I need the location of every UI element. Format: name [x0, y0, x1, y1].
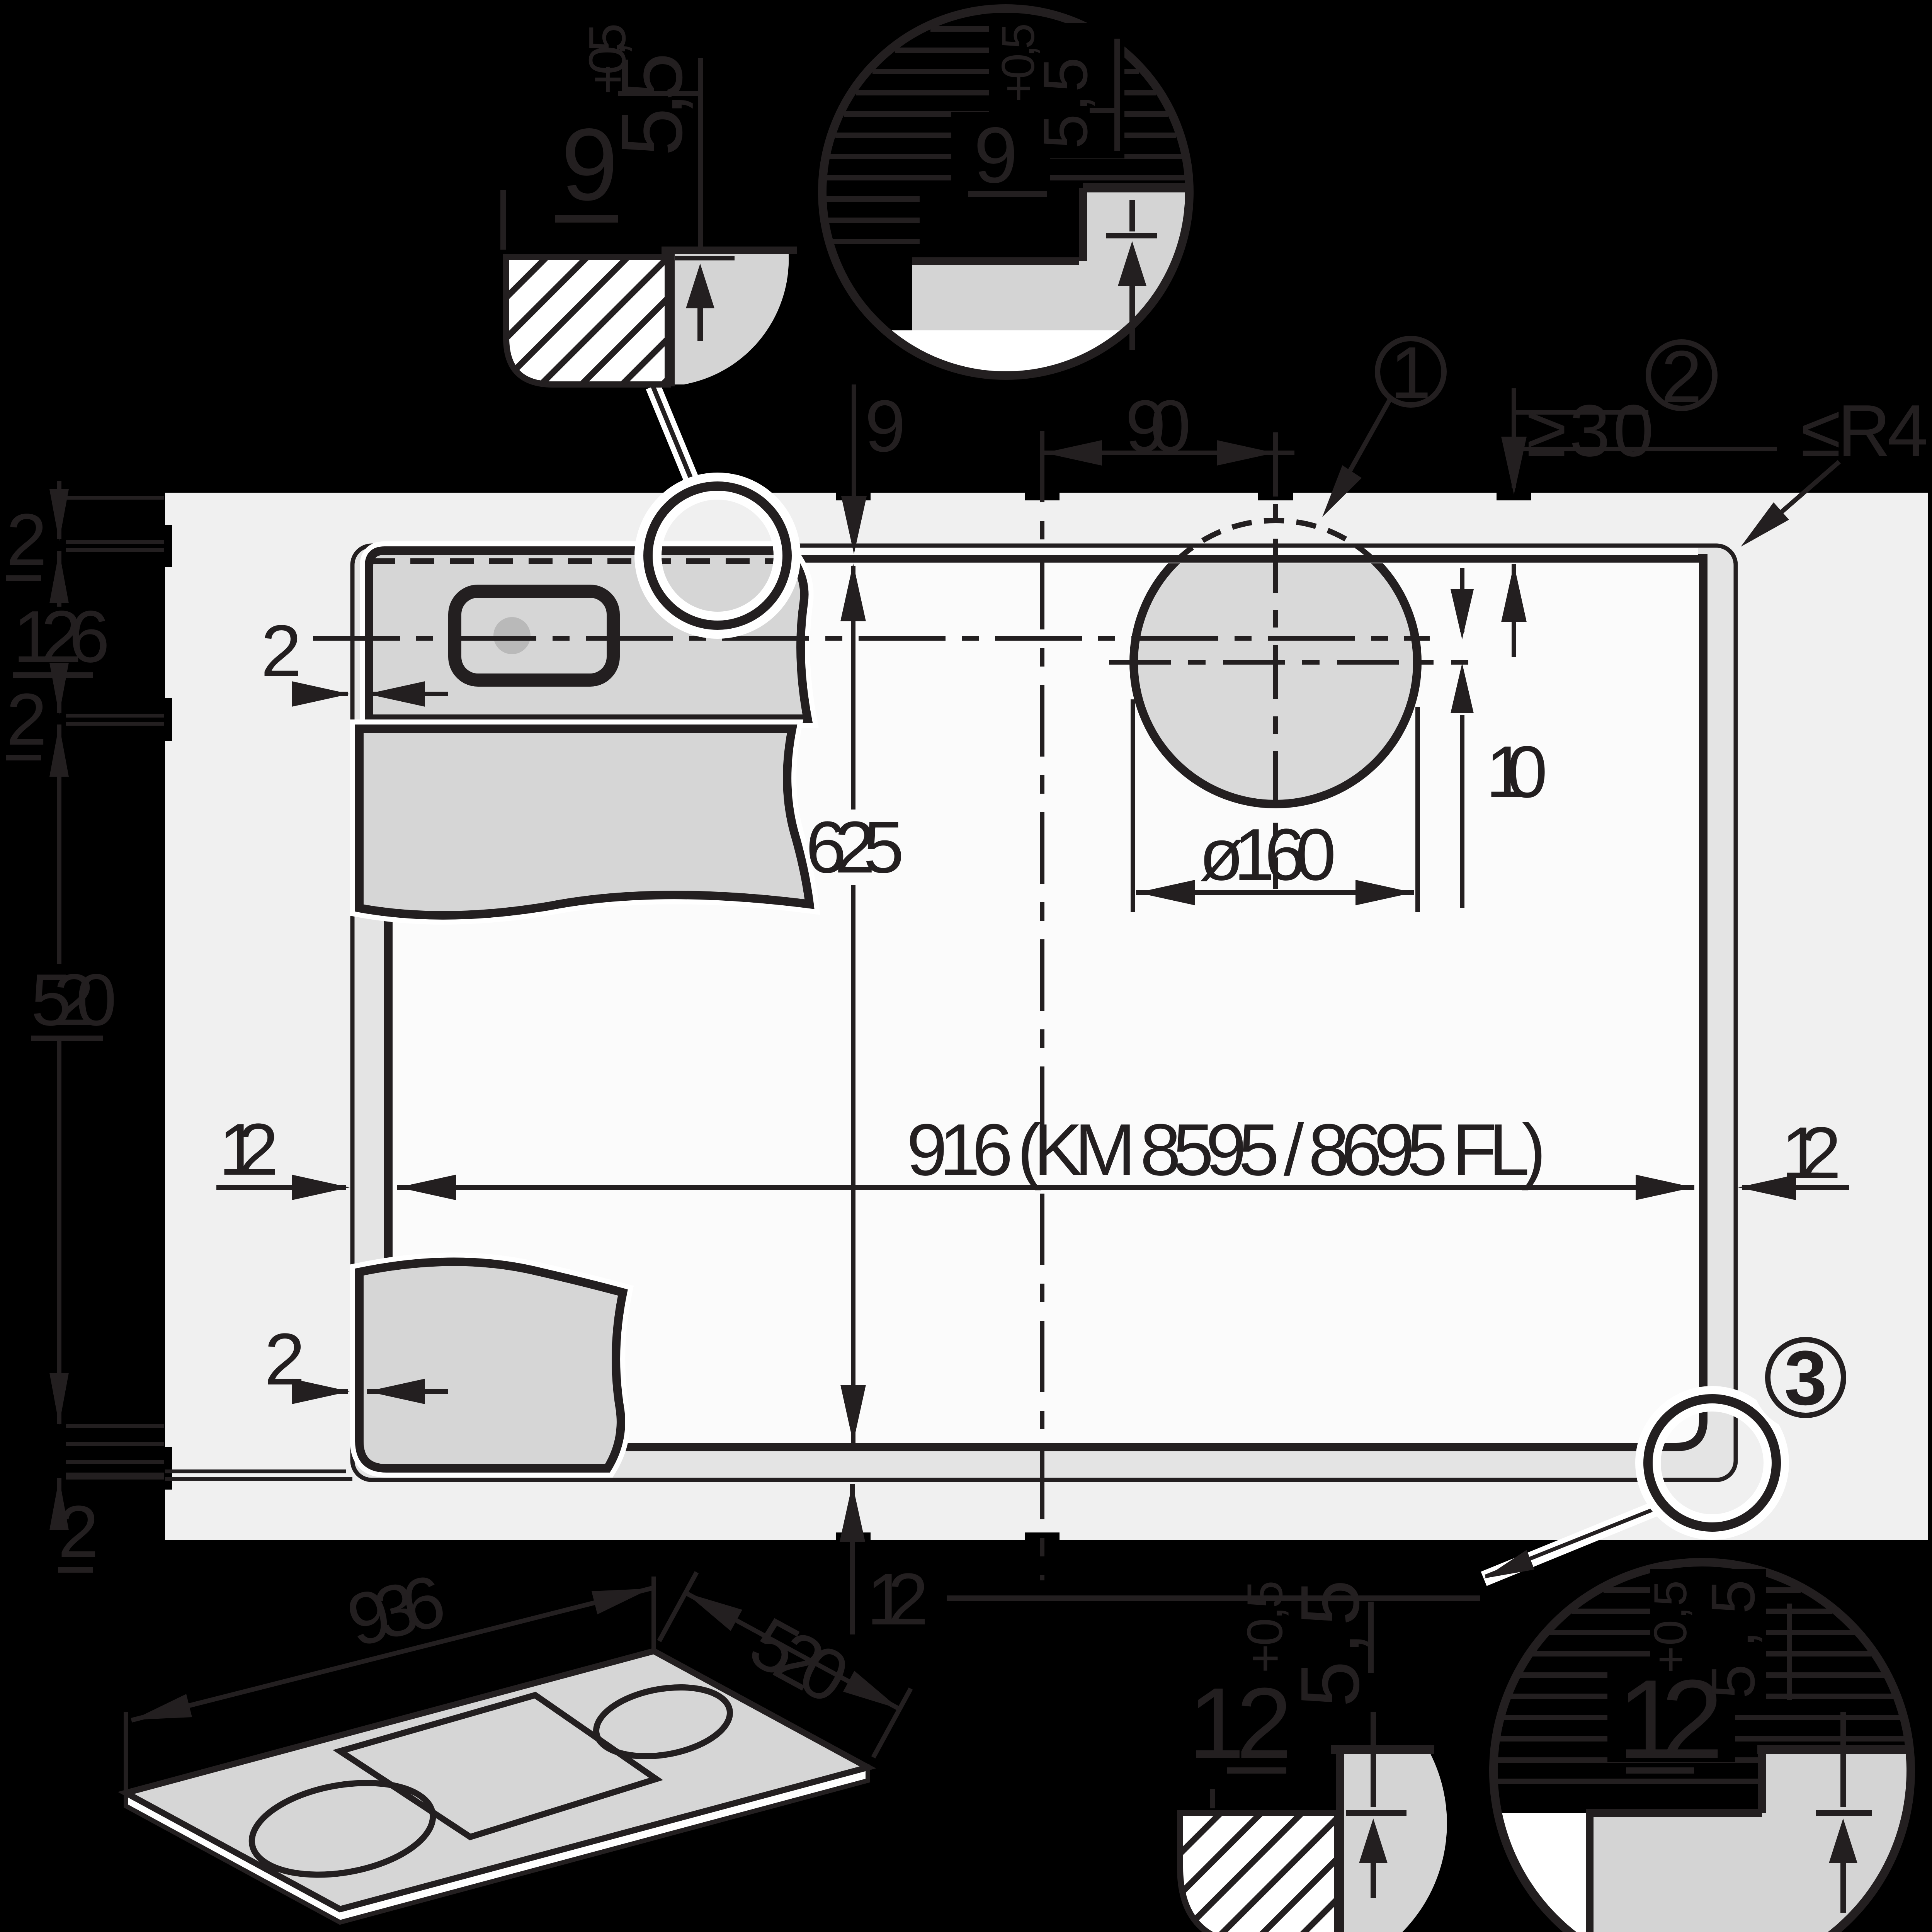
svg-text:12: 12: [1189, 1667, 1292, 1779]
svg-text:≥30: ≥30: [1526, 390, 1654, 472]
svg-text:1: 1: [1390, 332, 1431, 414]
svg-text:2: 2: [58, 1491, 99, 1573]
svg-text:12: 12: [219, 1109, 279, 1190]
svg-text:5,5: 5,5: [1698, 1580, 1767, 1699]
svg-text:2: 2: [1661, 336, 1702, 418]
svg-text:625: 625: [806, 806, 904, 888]
svg-text:12: 12: [867, 1558, 929, 1640]
svg-text:3: 3: [1784, 1335, 1827, 1421]
svg-text:2: 2: [6, 499, 47, 581]
svg-text:ø160: ø160: [1199, 814, 1336, 896]
svg-text:9: 9: [974, 111, 1018, 199]
svg-text:10: 10: [1486, 731, 1548, 813]
svg-text:+0,5: +0,5: [992, 23, 1044, 102]
svg-text:+0,5: +0,5: [1645, 1580, 1696, 1673]
svg-text:5,5: 5,5: [1283, 1580, 1376, 1707]
svg-text:+0,5: +0,5: [1236, 1580, 1293, 1673]
svg-text:≤R4: ≤R4: [1801, 390, 1928, 472]
svg-text:2: 2: [6, 679, 47, 760]
svg-text:+0,5: +0,5: [578, 23, 636, 95]
svg-text:9: 9: [865, 385, 906, 467]
svg-text:126: 126: [13, 596, 110, 678]
svg-text:520: 520: [31, 959, 117, 1041]
svg-text:12: 12: [1781, 1112, 1841, 1194]
svg-text:916 (KM 8595 / 8695 FL): 916 (KM 8595 / 8695 FL): [906, 1109, 1546, 1191]
svg-text:2: 2: [261, 610, 302, 692]
